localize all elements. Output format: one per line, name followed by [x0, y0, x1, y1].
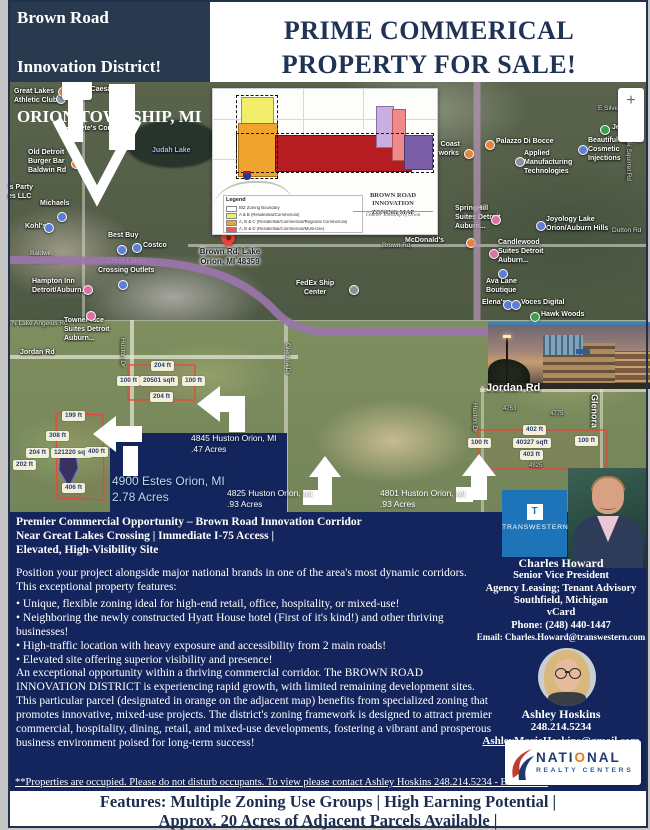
poi-michaels: Michaels — [40, 200, 70, 209]
legend-swatch-yellow — [226, 213, 237, 219]
pin-north-coast-icon — [464, 149, 474, 159]
legend-swatch-red — [226, 227, 237, 233]
poi-palazzo-di-bocce: Palazzo Di Bocce — [496, 138, 554, 147]
header-title-box: Brown Road Innovation District! ORION TO… — [8, 0, 210, 82]
road-label-huston-1: Huston Dr — [118, 338, 126, 367]
measure-chip: 403 ft — [520, 450, 543, 460]
poi-costco: Costco — [143, 242, 167, 251]
poi-old-detroit-burger: Old Detroit Burger Bar Baldwin Rd — [28, 149, 66, 175]
zoning-boundary-dashed — [236, 133, 434, 173]
photo-hotel-sign — [576, 349, 590, 354]
nrc-text-o: O — [575, 750, 588, 765]
poi-joyology: Joyology Lake Orion/Auburn Hills — [546, 216, 608, 234]
pin-voces-icon — [511, 300, 521, 310]
charles-email-link[interactable]: Email: Charles.Howard@transwestern.com — [474, 632, 648, 643]
legend-entry: A, B & D (Residential/Commercial/Multi-U… — [239, 227, 324, 232]
pin-palazzo-icon — [485, 140, 495, 150]
zoning-legend: Legend BIZ Zoning Boundary A & B (Reside… — [223, 195, 363, 233]
poi-brown-rd-address: Brown Rd, Lake Orion, MI 48359 — [190, 247, 270, 267]
zoom-out-button[interactable]: − — [618, 132, 644, 158]
nrc-text: NAL — [587, 750, 621, 765]
measure-chip: 406 ft — [62, 483, 85, 493]
pin-kohls-icon — [44, 223, 54, 233]
road-label-jordan-west: Jordan Rd — [20, 349, 55, 358]
address-4845-huston: 4845 Huston Orion, MI .47 Acres — [191, 433, 277, 456]
house-number-4825: 4825 — [529, 463, 542, 471]
poi-kohls: Kohl's — [25, 223, 46, 232]
measure-chip: 20501 sqft — [140, 376, 178, 386]
poi-applied-manufacturing: Applied Manufacturing Technologies — [524, 150, 572, 176]
legend-entry: A, B & C (Residential/Commercial/Regiona… — [239, 220, 347, 225]
pin-hawk-woods-icon — [530, 312, 540, 322]
flyer-canvas: Brown Road Innovation District! ORION TO… — [0, 0, 650, 830]
measure-chip: 100 ft — [117, 376, 140, 386]
glasses-bridge — [565, 671, 569, 673]
photo-lamp-post — [506, 337, 508, 387]
title-line3: ORION TOWNSHIP, MI — [17, 107, 201, 126]
measure-chip: 400 ft — [85, 447, 108, 457]
charles-city: Southfield, Michigan — [474, 595, 648, 607]
measure-chip: 204 ft — [150, 392, 173, 402]
pin-fedex-icon — [349, 285, 359, 295]
transwestern-wordmark: TRANSWESTERN — [502, 524, 567, 531]
body-paragraph-2: An exceptional opportunity within a thri… — [16, 666, 492, 750]
pin-old-detroit-icon — [71, 159, 81, 169]
charles-howard-photo — [568, 468, 648, 568]
national-realty-centers-logo: NATIONAL REALTY CENTERS — [505, 740, 641, 785]
pin-glco-icon — [118, 280, 128, 290]
measure-chip: 204 ft — [151, 361, 174, 371]
pin-mcdonalds-icon — [466, 238, 476, 248]
nrc-text: NATI — [536, 750, 575, 765]
poi-party-store: 's Party es LLC — [8, 184, 33, 202]
house-number-4763: 4763 — [503, 406, 516, 414]
measure-chip: 402 ft — [523, 425, 546, 435]
sale-headline: PRIME COMMERICAL PROPERTY FOR SALE! — [210, 6, 648, 90]
pin-hampton-icon — [83, 285, 93, 295]
body-intro: Position your project alongside major na… — [16, 566, 492, 594]
poi-mcdonalds: McDonald's — [405, 237, 444, 246]
flyer-title: Brown Road Innovation District! ORION TO… — [8, 0, 210, 129]
address-4825-huston: 4825 Huston Orion, MI .93 Acres — [227, 488, 313, 511]
bullet-item: • High-traffic location with heavy expos… — [16, 639, 492, 653]
features-footer: Features: Multiple Zoning Use Groups | H… — [8, 791, 648, 828]
pin-michaels-icon — [57, 212, 67, 222]
zoom-in-button[interactable]: + — [618, 88, 644, 114]
nrc-wordmark: NATIONAL REALTY CENTERS — [536, 751, 633, 774]
nrc-swoosh-icon — [508, 745, 534, 781]
road-label-glenora-1: Glenora Dr — [283, 343, 291, 375]
poi-towneplace-suites: TownePlace Suites Detroit Auburn... — [64, 317, 110, 343]
photo-smile — [600, 504, 616, 510]
measure-chip: 100 ft — [182, 376, 205, 386]
glasses-icon — [555, 668, 567, 679]
bullet-item: • Unique, flexible zoning ideal for high… — [16, 597, 492, 611]
title-line2: Innovation District! — [17, 57, 161, 76]
body-bullets: • Unique, flexible zoning ideal for high… — [16, 597, 492, 667]
poi-voces-digital: Voces Digital — [521, 299, 564, 308]
road-label-dutton: Dutton Rd — [612, 227, 641, 235]
interstate-shield-icon — [243, 171, 251, 180]
poi-great-lakes-crossing: Great Lakes Crossing Outlets — [98, 258, 154, 276]
poi-judah-lake: Judah Lake — [152, 147, 191, 156]
ashley-hoskins-photo — [538, 648, 596, 706]
zoning-map-overlay: Legend BIZ Zoning Boundary A & B (Reside… — [212, 88, 438, 235]
charles-vcard-link[interactable]: vCard — [474, 607, 648, 619]
charles-phone: Phone: (248) 440-1447 — [474, 620, 648, 632]
transwestern-t-icon: T — [527, 504, 543, 520]
title-line1: Brown Road — [17, 8, 109, 27]
legend-swatch-orange — [226, 220, 237, 226]
transwestern-logo: T TRANSWESTERN — [502, 490, 567, 557]
zoning-gridline — [363, 89, 364, 129]
charles-name: Charles Howard — [474, 556, 648, 570]
map-zoom-control: + − — [618, 88, 644, 142]
measure-chip: 202 ft — [13, 460, 36, 470]
hyatt-house-photo — [488, 322, 650, 389]
measure-chip: 199 ft — [62, 411, 85, 421]
pin-best-buy-icon — [117, 245, 127, 255]
poi-hampton-inn: Hampton Inn Detroit/Auburn... — [32, 278, 87, 296]
legend-title: Legend — [226, 197, 360, 205]
body-headline: Premier Commercial Opportunity – Brown R… — [16, 515, 492, 557]
poi-hawk-woods: Hawk Woods — [541, 311, 584, 320]
measure-chip: 100 ft — [468, 438, 491, 448]
measure-chip: 204 ft — [26, 448, 49, 458]
legend-entry: BIZ Zoning Boundary — [239, 206, 280, 211]
pin-jesse-icon — [600, 125, 610, 135]
road-label-huston-2: Huston Dr — [470, 403, 478, 432]
poi-ava-lane: Ava Lane Boutique — [486, 278, 517, 296]
ashley-name: Ashley Hoskins — [474, 707, 648, 721]
bullet-item: • Elevated site offering superior visibi… — [16, 653, 492, 667]
poi-fedex: FedEx Ship Center — [296, 280, 334, 298]
house-number-4775: 4775 — [550, 411, 563, 419]
measure-chip: 308 ft — [46, 431, 69, 441]
bullet-item: • Neighboring the newly constructed Hyat… — [16, 611, 492, 639]
poi-candlewood-suites: Candlewood Suites Detroit Auburn... — [498, 239, 544, 265]
nrc-tagline: REALTY CENTERS — [536, 767, 633, 774]
poi-baldwin-commons: Baldwin Commons — [30, 250, 60, 266]
pin-candlewood-icon — [489, 249, 499, 259]
pin-costco-icon — [132, 243, 142, 253]
measure-chip: 40327 sqft — [513, 438, 551, 448]
road-label-jordan-east: Jordan Rd — [486, 382, 540, 396]
glasses-icon — [569, 668, 581, 679]
pin-towneplace-icon — [86, 311, 96, 321]
charles-dept: Agency Leasing; Tenant Advisory — [474, 583, 648, 595]
measure-chip: 100 ft — [575, 436, 598, 446]
pin-beautiful-you-icon — [578, 145, 588, 155]
address-4900-estes: 4900 Estes Orion, MI 2.78 Acres — [112, 473, 225, 505]
photo-lamp-light — [503, 335, 511, 338]
legend-swatch-white — [226, 206, 237, 212]
ashley-phone: 248.214.5234 — [474, 721, 648, 734]
photo-top — [548, 692, 586, 706]
legend-entry: A & B (Residential/Commercial) — [239, 213, 299, 218]
zoning-map-subtitle: Charter Township of Orion — [353, 211, 433, 219]
poi-best-buy: Best Buy — [108, 232, 138, 241]
pin-applied-icon — [515, 157, 525, 167]
pin-joyology-icon — [536, 221, 546, 231]
road-glenora-east — [600, 386, 603, 470]
pin-springhill-icon — [491, 215, 501, 225]
charles-contact-block: Charles Howard Senior Vice President Age… — [474, 556, 648, 643]
address-4801-huston: 4801 Huston Orion, MI .93 Acres — [380, 488, 466, 511]
pin-ava-icon — [498, 269, 508, 279]
road-label-glenora-2: Glenora — [588, 394, 599, 428]
road-huston-dr-east — [481, 386, 484, 512]
road-label-lake-angelus: N Lake Angelus Rd — [12, 320, 68, 328]
charles-title: Senior Vice President — [474, 570, 648, 582]
